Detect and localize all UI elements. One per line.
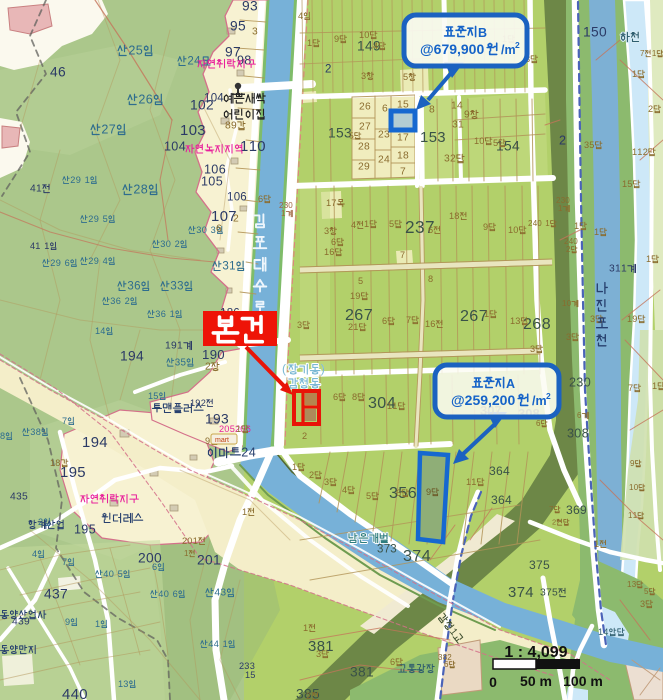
svg-text:4: 4: [422, 547, 431, 565]
svg-text:4: 4: [373, 41, 378, 51]
svg-text:0: 0: [166, 239, 171, 249]
svg-text:2: 2: [125, 296, 130, 306]
svg-text:5: 5: [627, 179, 632, 189]
svg-text:0: 0: [537, 219, 542, 228]
svg-text:3: 3: [640, 599, 645, 609]
svg-text:8: 8: [582, 427, 589, 441]
svg-text:2: 2: [309, 470, 314, 480]
svg-text:5: 5: [552, 588, 558, 599]
svg-text:5: 5: [349, 130, 354, 140]
svg-text:3: 3: [123, 679, 128, 689]
svg-text:7: 7: [62, 416, 67, 426]
svg-text:9: 9: [464, 110, 470, 121]
svg-text:7: 7: [364, 306, 373, 324]
svg-text:7: 7: [400, 250, 405, 260]
svg-text:0: 0: [377, 394, 386, 412]
svg-text:0: 0: [187, 536, 192, 546]
svg-text:3: 3: [177, 281, 183, 293]
svg-text:5: 5: [366, 491, 371, 501]
svg-text:100 m: 100 m: [563, 673, 603, 689]
svg-text:2: 2: [201, 398, 206, 408]
svg-text:1: 1: [201, 175, 208, 189]
svg-text:1: 1: [120, 348, 128, 363]
svg-text:1: 1: [184, 549, 189, 558]
svg-text:4: 4: [158, 589, 163, 599]
svg-text:6: 6: [173, 589, 178, 599]
svg-text:0: 0: [584, 376, 591, 390]
svg-text:8: 8: [36, 427, 41, 437]
svg-text:3: 3: [222, 261, 228, 273]
svg-text:2: 2: [566, 245, 571, 254]
svg-text:1: 1: [249, 139, 257, 155]
svg-text:7: 7: [365, 122, 371, 133]
svg-text:2: 2: [138, 550, 146, 565]
svg-text:4: 4: [505, 493, 512, 507]
svg-text:1: 1: [366, 664, 374, 679]
svg-text:1: 1: [307, 38, 312, 48]
svg-text:4: 4: [62, 687, 70, 700]
svg-text:7: 7: [628, 383, 633, 393]
svg-text:3: 3: [324, 477, 329, 487]
svg-text:2: 2: [197, 552, 205, 567]
svg-text:1: 1: [85, 175, 90, 185]
svg-text:9: 9: [364, 162, 370, 173]
svg-text:1: 1: [229, 261, 235, 273]
svg-text:4: 4: [512, 138, 520, 153]
svg-text:5: 5: [77, 465, 85, 481]
svg-text:5: 5: [181, 357, 187, 368]
svg-text:2: 2: [128, 44, 135, 58]
svg-text:7: 7: [60, 586, 68, 601]
svg-text:@259,200: @259,200: [451, 392, 515, 408]
svg-text:6: 6: [382, 104, 388, 115]
svg-text:4: 4: [100, 326, 105, 336]
svg-text:4: 4: [71, 687, 79, 700]
svg-text:6: 6: [469, 307, 478, 325]
svg-text:1: 1: [164, 140, 171, 154]
svg-text:4: 4: [384, 155, 390, 166]
svg-text:4: 4: [351, 220, 356, 230]
svg-text:2: 2: [241, 446, 248, 460]
svg-text:7: 7: [400, 167, 406, 178]
svg-text:3: 3: [110, 296, 115, 306]
svg-text:2: 2: [643, 147, 648, 157]
svg-text:7: 7: [406, 315, 411, 325]
svg-text:6: 6: [428, 225, 433, 235]
svg-text:3: 3: [529, 558, 536, 572]
svg-text:1: 1: [353, 322, 358, 332]
svg-text:1: 1: [95, 619, 100, 629]
svg-text:9: 9: [632, 314, 637, 324]
svg-text:0: 0: [217, 347, 224, 362]
svg-text:5: 5: [644, 587, 649, 596]
svg-text:7: 7: [384, 544, 390, 556]
svg-text:9: 9: [334, 34, 339, 44]
svg-text:5: 5: [403, 72, 408, 82]
svg-text:3: 3: [197, 123, 205, 139]
svg-text:1: 1: [574, 221, 579, 231]
svg-text:0: 0: [565, 196, 570, 205]
svg-text:6: 6: [496, 464, 503, 478]
svg-text:9: 9: [210, 347, 217, 362]
svg-text:1: 1: [213, 552, 221, 567]
svg-text:3: 3: [127, 281, 133, 293]
svg-text:3: 3: [491, 493, 498, 507]
svg-text:6: 6: [329, 247, 334, 257]
svg-text:4: 4: [249, 446, 256, 460]
svg-text:3: 3: [296, 686, 304, 700]
svg-text:5: 5: [389, 219, 394, 229]
svg-text:2: 2: [450, 154, 456, 165]
svg-text:5: 5: [103, 214, 108, 224]
svg-text:7: 7: [549, 505, 554, 514]
svg-text:4: 4: [136, 348, 144, 363]
svg-text:0: 0: [364, 30, 369, 40]
svg-text:1: 1: [227, 192, 233, 204]
svg-text:3: 3: [489, 464, 496, 478]
svg-text:9: 9: [483, 222, 488, 232]
svg-text:9: 9: [81, 523, 88, 537]
svg-text:3: 3: [297, 320, 302, 330]
svg-text:1: 1: [364, 219, 369, 229]
svg-text:9: 9: [76, 175, 81, 185]
svg-text:1: 1: [205, 411, 213, 426]
svg-text:1: 1: [484, 309, 489, 319]
svg-text:5: 5: [336, 125, 344, 140]
svg-text:9: 9: [205, 436, 210, 446]
svg-text:2: 2: [559, 134, 566, 148]
svg-text:0: 0: [567, 299, 572, 308]
svg-text:3: 3: [567, 427, 574, 441]
svg-text:2: 2: [306, 691, 311, 700]
svg-text:1: 1: [44, 241, 49, 251]
svg-text:3: 3: [390, 544, 396, 556]
svg-text:1: 1: [594, 539, 599, 549]
svg-text:6: 6: [152, 562, 157, 572]
svg-text:6: 6: [216, 224, 222, 235]
svg-text:7: 7: [640, 49, 645, 58]
svg-text:6: 6: [58, 64, 66, 79]
svg-text:1: 1: [357, 38, 365, 53]
svg-text:1: 1: [594, 227, 599, 237]
svg-text:1: 1: [281, 209, 286, 218]
svg-text:8: 8: [0, 431, 5, 441]
svg-text:3: 3: [368, 394, 377, 412]
svg-text:1: 1: [180, 123, 188, 139]
svg-text:2: 2: [552, 518, 556, 527]
svg-text:9: 9: [231, 121, 237, 132]
svg-text:1: 1: [177, 341, 183, 352]
svg-text:5: 5: [358, 276, 363, 286]
svg-text:0: 0: [202, 225, 207, 235]
svg-text:3: 3: [220, 588, 226, 599]
svg-text:9: 9: [355, 291, 360, 301]
svg-text:3: 3: [415, 217, 425, 237]
svg-text:7: 7: [517, 585, 525, 601]
svg-text:9: 9: [230, 18, 238, 33]
svg-text:4: 4: [525, 585, 533, 601]
svg-text:2: 2: [205, 362, 211, 373]
svg-text:1: 1: [193, 536, 198, 546]
svg-text:3: 3: [30, 427, 35, 437]
svg-text:0: 0: [189, 123, 197, 139]
svg-text:7: 7: [403, 133, 409, 144]
svg-text:2: 2: [233, 214, 239, 225]
svg-text:4: 4: [365, 38, 373, 53]
svg-text:3: 3: [566, 332, 571, 342]
svg-text:5: 5: [591, 24, 599, 39]
svg-text:8: 8: [403, 151, 409, 162]
svg-text:0: 0: [513, 225, 518, 235]
svg-text:0: 0: [211, 93, 217, 105]
svg-text:8: 8: [429, 105, 435, 116]
svg-text:9: 9: [426, 487, 431, 497]
svg-text:1: 1: [82, 435, 90, 451]
svg-text:1: 1: [637, 147, 642, 157]
svg-text:0: 0: [234, 192, 240, 204]
svg-text:5: 5: [216, 175, 223, 189]
svg-text:6: 6: [65, 258, 70, 268]
svg-text:1: 1: [583, 24, 591, 39]
svg-text:3: 3: [403, 547, 412, 565]
svg-text:9: 9: [94, 214, 99, 224]
svg-text:5: 5: [250, 670, 255, 680]
svg-text:7: 7: [62, 557, 67, 567]
svg-text:1: 1: [633, 511, 638, 520]
svg-text:6: 6: [146, 93, 153, 107]
svg-text:8: 8: [428, 274, 433, 284]
svg-text:1: 1: [652, 381, 657, 391]
svg-text:4: 4: [44, 586, 52, 601]
svg-text:0: 0: [257, 139, 265, 155]
svg-text:5: 5: [238, 18, 246, 33]
svg-text:7: 7: [536, 558, 543, 572]
svg-text:4: 4: [214, 639, 219, 649]
svg-text:0: 0: [79, 687, 87, 700]
svg-text:3: 3: [361, 71, 366, 81]
svg-text:4: 4: [32, 549, 37, 559]
svg-text:9: 9: [94, 256, 99, 266]
svg-text:2: 2: [138, 93, 145, 107]
svg-text:8: 8: [244, 54, 251, 68]
svg-text:3: 3: [52, 586, 60, 601]
svg-text:0: 0: [288, 201, 293, 210]
svg-text:4: 4: [457, 101, 463, 112]
svg-text:1: 1: [420, 130, 428, 146]
svg-text:1: 1: [202, 347, 209, 362]
svg-text:2: 2: [302, 431, 307, 441]
svg-text:6: 6: [577, 411, 582, 420]
svg-text:4: 4: [103, 569, 108, 579]
svg-text:2: 2: [569, 376, 576, 390]
svg-text:2: 2: [405, 217, 415, 237]
svg-text:5: 5: [118, 569, 123, 579]
svg-text:8: 8: [352, 392, 357, 402]
svg-text:4: 4: [99, 435, 107, 451]
svg-text:3: 3: [377, 544, 383, 556]
svg-text:9: 9: [91, 435, 99, 451]
svg-text:2: 2: [515, 40, 520, 50]
svg-text:1: 1: [204, 93, 210, 105]
svg-text:6: 6: [333, 392, 338, 402]
svg-text:1: 1: [60, 465, 68, 481]
svg-text:8: 8: [364, 142, 370, 153]
svg-text:2: 2: [460, 307, 469, 325]
svg-text:1: 1: [35, 241, 40, 251]
svg-text:1: 1: [223, 639, 228, 649]
svg-text:4: 4: [503, 464, 510, 478]
svg-text:0: 0: [109, 569, 114, 579]
svg-text:7: 7: [331, 198, 336, 208]
svg-text:): ): [321, 362, 325, 376]
svg-text:2: 2: [88, 256, 93, 266]
svg-text:6: 6: [365, 102, 371, 113]
svg-text:1: 1: [652, 49, 657, 58]
svg-text:6: 6: [532, 315, 541, 333]
svg-text:4: 4: [217, 93, 224, 105]
svg-text:5: 5: [136, 44, 143, 58]
svg-text:1: 1: [292, 462, 297, 472]
svg-text:0: 0: [224, 424, 229, 434]
svg-text:1: 1: [242, 507, 247, 517]
svg-text:1: 1: [458, 120, 464, 131]
svg-text:2: 2: [101, 123, 108, 137]
svg-text:4: 4: [103, 256, 108, 266]
svg-text:1: 1: [170, 309, 175, 319]
svg-text:5: 5: [504, 138, 512, 153]
svg-text:/m: /m: [532, 394, 547, 408]
svg-text:9: 9: [128, 348, 136, 363]
svg-text:9: 9: [225, 44, 233, 59]
svg-text:4: 4: [603, 627, 608, 637]
svg-text:3: 3: [316, 649, 321, 659]
svg-text:A: A: [506, 377, 515, 391]
svg-text:2: 2: [187, 56, 193, 68]
svg-text:8: 8: [141, 183, 148, 197]
svg-text:3: 3: [530, 344, 535, 354]
svg-text:5: 5: [589, 140, 594, 150]
svg-text:3: 3: [350, 664, 358, 679]
svg-text:2: 2: [133, 183, 140, 197]
svg-text:3: 3: [324, 226, 329, 236]
svg-text:6: 6: [430, 319, 435, 329]
svg-text:6: 6: [240, 192, 246, 204]
svg-text:3: 3: [250, 0, 258, 13]
svg-text:1: 1: [392, 401, 397, 411]
svg-text:1: 1: [621, 264, 627, 275]
svg-text:0: 0: [208, 175, 215, 189]
svg-text:3: 3: [632, 580, 637, 589]
svg-text:9: 9: [580, 503, 587, 517]
svg-text:@679,900: @679,900: [420, 41, 484, 57]
svg-text:6: 6: [444, 660, 449, 669]
svg-text:B: B: [478, 26, 487, 40]
svg-text:3: 3: [170, 281, 176, 293]
svg-text:4: 4: [298, 11, 303, 21]
svg-text:9: 9: [65, 617, 70, 627]
svg-text:1: 1: [632, 69, 637, 79]
svg-text:1: 1: [190, 97, 198, 112]
svg-text:6: 6: [116, 296, 121, 306]
svg-text:7: 7: [109, 123, 116, 137]
svg-text:6: 6: [331, 237, 336, 247]
svg-text:5: 5: [22, 492, 28, 503]
svg-text:2: 2: [50, 258, 55, 268]
svg-text:1: 1: [303, 623, 308, 633]
svg-text:1: 1: [236, 424, 241, 434]
svg-text:2: 2: [325, 64, 331, 76]
svg-text:8: 8: [454, 211, 459, 221]
svg-text:6: 6: [258, 194, 263, 204]
svg-text:3: 3: [566, 503, 573, 517]
svg-text:1: 1: [545, 219, 550, 228]
svg-text:4: 4: [208, 639, 213, 649]
svg-text:6: 6: [390, 657, 395, 667]
svg-text:5: 5: [429, 130, 437, 146]
svg-text:0: 0: [171, 140, 178, 154]
svg-text:0: 0: [489, 674, 497, 690]
svg-text:1: 1: [36, 184, 42, 195]
svg-text:1: 1: [328, 125, 336, 140]
svg-text:6: 6: [161, 309, 166, 319]
svg-text:0: 0: [574, 427, 581, 441]
svg-text:4: 4: [50, 64, 58, 79]
svg-text:3: 3: [437, 130, 445, 146]
svg-text:0: 0: [599, 24, 607, 39]
svg-text:0: 0: [164, 589, 169, 599]
svg-text:/m: /m: [501, 43, 516, 57]
svg-text:0: 0: [205, 552, 213, 567]
svg-text:2: 2: [88, 214, 93, 224]
svg-text:2: 2: [70, 175, 75, 185]
svg-text:(: (: [282, 362, 286, 376]
svg-text:50 m: 50 m: [520, 673, 552, 689]
svg-text:0: 0: [573, 237, 578, 246]
svg-text:9: 9: [69, 465, 77, 481]
svg-text:6: 6: [498, 493, 505, 507]
svg-text:3: 3: [508, 585, 516, 601]
svg-text:9: 9: [242, 0, 250, 13]
svg-text:2: 2: [648, 104, 653, 114]
svg-text:5: 5: [89, 523, 96, 537]
svg-text:mart: mart: [215, 437, 229, 444]
svg-text:6: 6: [382, 316, 387, 326]
svg-text:3: 3: [211, 225, 216, 235]
svg-text:3: 3: [515, 316, 520, 326]
svg-text:5: 5: [493, 138, 498, 148]
svg-text:7: 7: [412, 547, 421, 565]
svg-text:0: 0: [479, 136, 484, 146]
svg-text:2: 2: [546, 391, 551, 401]
svg-text:3: 3: [196, 225, 201, 235]
svg-text:6: 6: [408, 484, 417, 502]
svg-text:3: 3: [252, 27, 258, 38]
svg-text:1: 1: [471, 477, 476, 487]
svg-text:6: 6: [134, 281, 140, 293]
svg-text:3: 3: [576, 376, 583, 390]
svg-text:1: 1: [558, 204, 563, 213]
svg-text:9: 9: [630, 459, 635, 468]
svg-text:1: 1: [74, 523, 81, 537]
svg-text:1: 1: [646, 254, 651, 264]
svg-text:3: 3: [160, 239, 165, 249]
svg-text:4: 4: [179, 140, 186, 154]
svg-text:5: 5: [153, 391, 158, 401]
svg-text:3: 3: [155, 309, 160, 319]
svg-text:3: 3: [590, 314, 595, 324]
svg-text:6: 6: [573, 503, 580, 517]
svg-text:6: 6: [396, 488, 401, 498]
